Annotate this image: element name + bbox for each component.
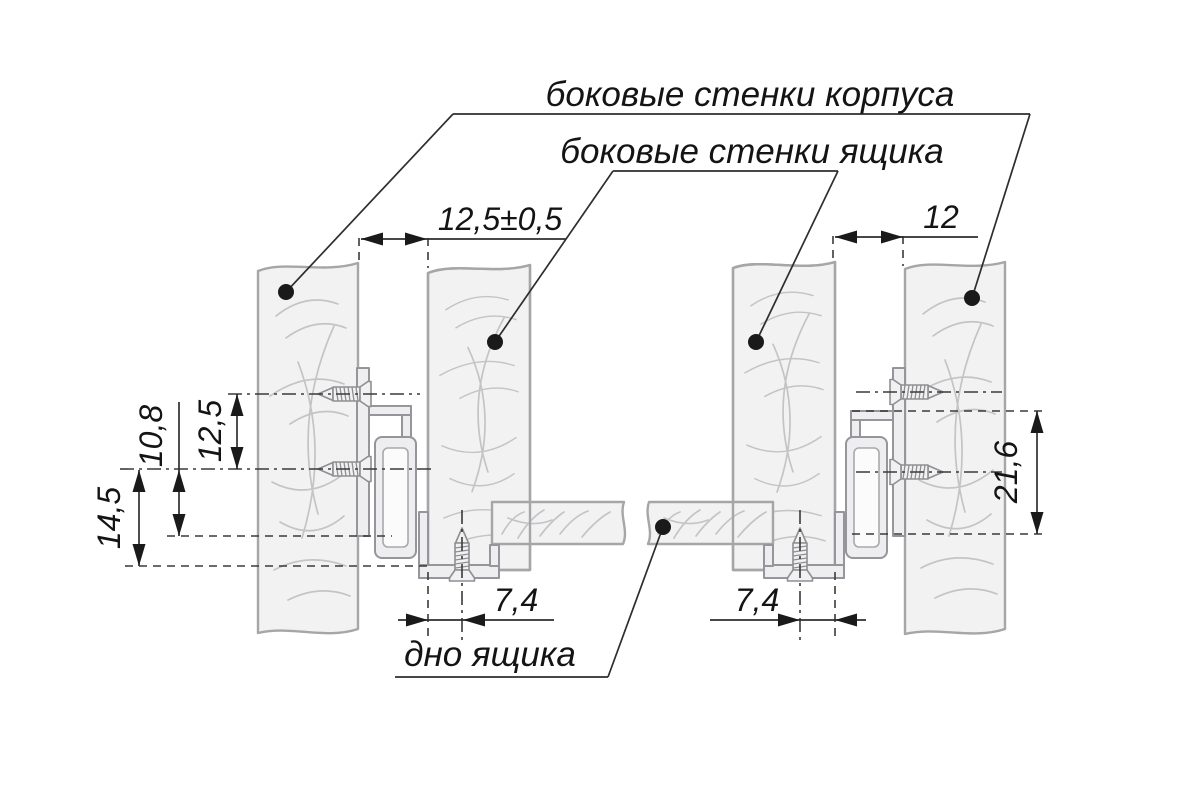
dim-text-screw-pitch: 12,5 [192,400,228,462]
arrowhead [463,614,485,627]
leader-dot [964,290,980,306]
leader-dot [655,519,671,535]
callout-drawer-walls: боковые стенки ящика [487,132,944,350]
arrowhead [231,394,244,416]
leader-dot [487,334,503,350]
arrowhead [835,231,857,244]
dim-text-inset-right: 7,4 [735,582,779,618]
arrowhead [361,233,383,246]
dim-text-rail-drop: 10,8 [133,405,169,467]
arrowhead [133,470,146,492]
leader-dot [278,284,294,300]
arrowhead [881,231,903,244]
arrowhead [1031,512,1044,534]
drawer-slide-mounting-diagram: 12,5±0,5 12 12,5 10,8 14,5 21,6 7,4 [0,0,1200,798]
label-drawer-walls: боковые стенки ящика [560,132,943,171]
dim-bottom-screw-inset-left: 7,4 [398,582,554,627]
arrowhead [778,614,800,627]
arrowhead [835,614,857,627]
label-drawer-bottom: дно ящика [404,635,576,674]
arrowhead [173,470,186,492]
dim-gap-right: 12 [835,199,978,244]
cabinet-wall-left [258,263,358,633]
label-cabinet-walls: боковые стенки корпуса [546,75,955,114]
drawer-bottom-panel [492,502,773,544]
dim-text-rail-height: 21,6 [988,441,1024,504]
leader-dot [748,334,764,350]
dim-text-gap-right: 12 [923,199,959,235]
dim-text-rail-bottom-offset: 14,5 [91,487,127,549]
dim-gap-left: 12,5±0,5 [361,201,566,246]
dim-screw-pitch: 12,5 [192,394,244,469]
arrowhead [406,614,428,627]
arrowhead [173,514,186,536]
dim-text-inset-left: 7,4 [494,582,538,618]
arrowhead [1031,411,1044,433]
arrowhead [133,544,146,566]
arrowhead [231,447,244,469]
dim-bottom-screw-inset-right: 7,4 [710,582,866,627]
dim-rail-bottom-offset: 14,5 [91,470,146,566]
technical-drawing-page: 12,5±0,5 12 12,5 10,8 14,5 21,6 7,4 [0,0,1200,798]
arrowhead [405,233,427,246]
dim-text-gap-left: 12,5±0,5 [438,201,563,237]
